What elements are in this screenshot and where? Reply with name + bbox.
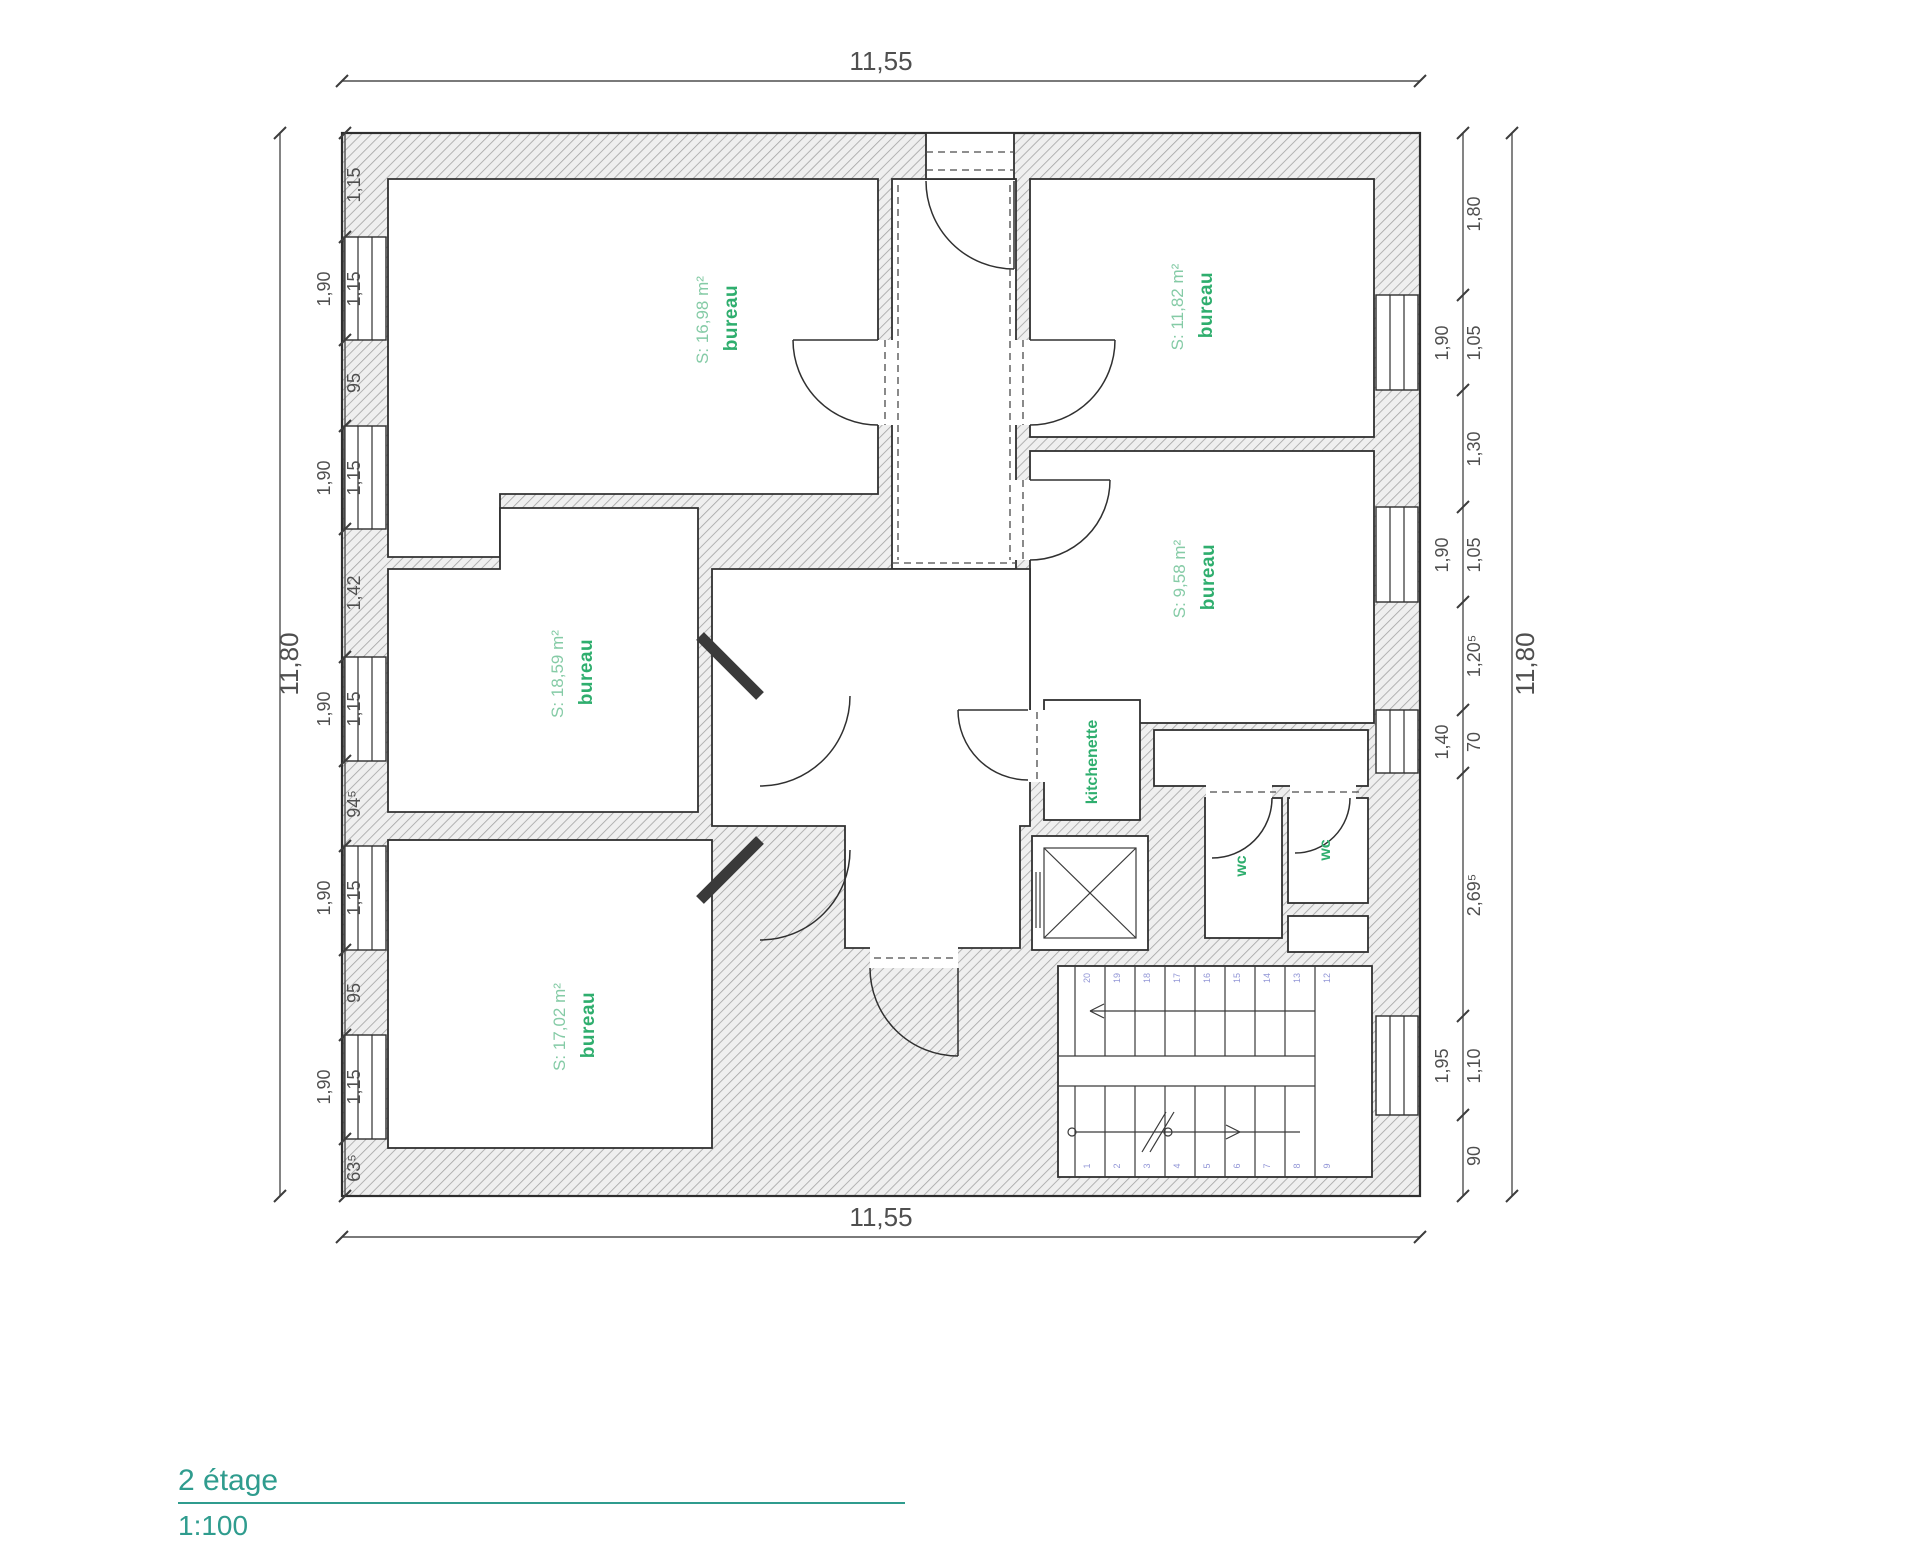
- dim-right-total: 11,80: [1510, 632, 1540, 695]
- room-area: S: 17,02 m²: [550, 983, 569, 1071]
- room-label: kitchenette: [1084, 720, 1101, 805]
- window-right-3: [1376, 710, 1418, 773]
- floor-plan-drawing: 20 19 18 17 16 15 14 13 12 1 2 3 4 5 6 7…: [0, 0, 1919, 1556]
- wc-niche: [1288, 916, 1368, 952]
- dim-left-window: 1,90: [314, 880, 334, 915]
- dim-left-seg: 1,15: [344, 271, 364, 306]
- stair-number: 3: [1142, 1163, 1152, 1168]
- dim-right-seg: 2,69⁵: [1464, 874, 1484, 917]
- stair-number: 17: [1172, 973, 1182, 983]
- dim-left-seg: 95: [344, 373, 364, 393]
- corridor: [892, 179, 1016, 569]
- dim-right-seg: 1,10: [1464, 1048, 1484, 1083]
- stair-number: 19: [1112, 973, 1122, 983]
- stair-number: 12: [1322, 973, 1332, 983]
- stair-number: 1: [1082, 1163, 1092, 1168]
- room-label: bureau: [576, 639, 597, 705]
- floor-title: 2 étage: [178, 1464, 278, 1497]
- dim-right-seg: 1,05: [1464, 325, 1484, 360]
- stair-number: 2: [1112, 1163, 1122, 1168]
- room-area: S: 16,98 m²: [693, 276, 712, 364]
- dim-left-seg: 1,15: [344, 460, 364, 495]
- room-label: wc: [1233, 855, 1250, 877]
- dim-left-seg: 1,15: [344, 880, 364, 915]
- room-label: bureau: [721, 285, 742, 351]
- room-area: S: 18,59 m²: [548, 630, 567, 718]
- dim-top-total: 11,55: [849, 46, 912, 76]
- dim-right-seg: 1,80: [1464, 196, 1484, 231]
- stair-number: 13: [1292, 973, 1302, 983]
- stair-number: 8: [1292, 1163, 1302, 1168]
- stair-number: 6: [1232, 1163, 1242, 1168]
- dim-right-seg: 1,20⁵: [1464, 635, 1484, 678]
- dim-left-seg: 63⁵: [344, 1154, 364, 1181]
- dim-right-window: 1,40: [1432, 724, 1452, 759]
- dim-right-window: 1,90: [1432, 325, 1452, 360]
- dim-right-seg: 70: [1464, 732, 1484, 752]
- window-right-2: [1376, 507, 1418, 602]
- room-label: bureau: [578, 992, 599, 1058]
- room-area: S: 11,82 m²: [1168, 263, 1187, 350]
- dim-left-seg: 1,15: [344, 167, 364, 202]
- dim-left-total: 11,80: [274, 632, 304, 695]
- window-right-1: [1376, 295, 1418, 390]
- stair-number: 7: [1262, 1163, 1272, 1168]
- stair-number: 4: [1172, 1163, 1182, 1168]
- dim-right-seg: 90: [1464, 1146, 1484, 1166]
- stair-numbers-lower: 1 2 3 4 5 6 7 8 9: [1082, 1163, 1332, 1168]
- dim-right-seg: 1,30: [1464, 431, 1484, 466]
- room-label: bureau: [1196, 272, 1217, 338]
- dim-left-window: 1,90: [314, 271, 334, 306]
- dim-right-window: 1,95: [1432, 1048, 1452, 1083]
- dim-left-seg: 1,15: [344, 1069, 364, 1104]
- floor-plan-page: 20 19 18 17 16 15 14 13 12 1 2 3 4 5 6 7…: [0, 0, 1919, 1556]
- dim-left-seg: 1,15: [344, 691, 364, 726]
- wc-access-strip: [1154, 730, 1368, 786]
- dim-left-seg: 94⁵: [344, 790, 364, 817]
- stair-number: 16: [1202, 973, 1212, 983]
- title-block: 2 étage 1:100: [178, 1464, 905, 1541]
- dim-left-window: 1,90: [314, 1069, 334, 1104]
- dim-left-seg: 95: [344, 983, 364, 1003]
- door-gap: [1028, 710, 1046, 782]
- stair-number: 15: [1232, 973, 1242, 983]
- room-area: S: 9,58 m²: [1170, 539, 1189, 618]
- scale-label: 1:100: [178, 1510, 248, 1541]
- room-label: bureau: [1198, 544, 1219, 610]
- room-label: wc: [1317, 839, 1334, 861]
- stair-number: 14: [1262, 973, 1272, 983]
- stair-number: 18: [1142, 973, 1152, 983]
- stair-numbers-upper: 20 19 18 17 16 15 14 13 12: [1082, 973, 1332, 983]
- dim-bottom-total: 11,55: [849, 1202, 912, 1232]
- dim-right-seg: 1,05: [1464, 537, 1484, 572]
- door-gap: [870, 946, 958, 968]
- dim-left-window: 1,90: [314, 691, 334, 726]
- stair-number: 5: [1202, 1163, 1212, 1168]
- dim-left-window: 1,90: [314, 460, 334, 495]
- stair-number: 9: [1322, 1163, 1332, 1168]
- entrance-recess: [926, 133, 1014, 179]
- stair-number: 20: [1082, 973, 1092, 983]
- elevator-shaft: [1032, 836, 1148, 950]
- dim-left-seg: 1,42: [344, 575, 364, 610]
- dim-right-window: 1,90: [1432, 537, 1452, 572]
- window-right-4: [1376, 1016, 1418, 1115]
